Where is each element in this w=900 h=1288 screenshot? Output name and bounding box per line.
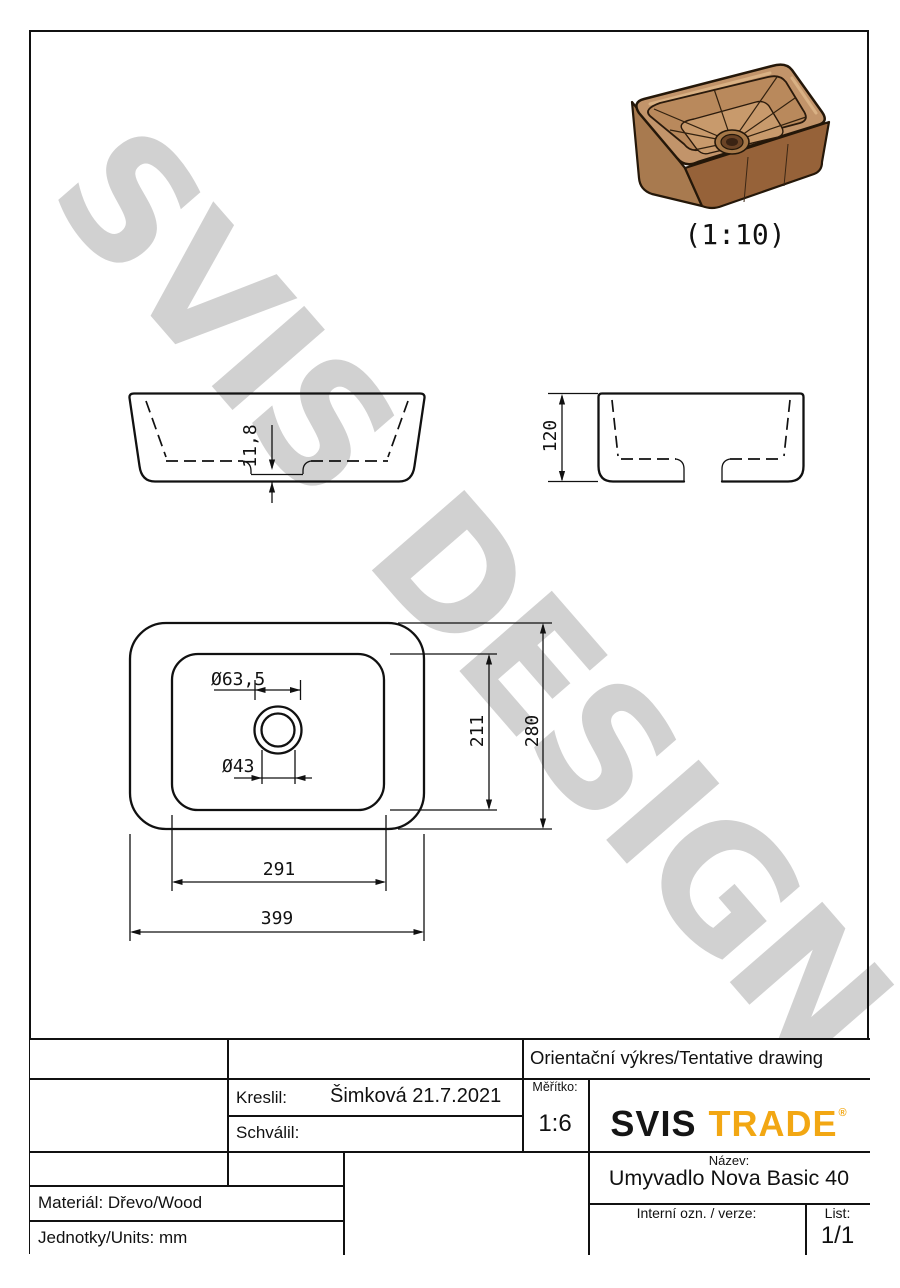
scale-field-label: Měřítko: (522, 1080, 588, 1094)
sink-3d-preview (598, 56, 838, 236)
drawing-page: SVIS DESIGN (1:10) (0, 0, 900, 1288)
side-view: 120 (540, 394, 804, 482)
drawn-by-value: Šimková 21.7.2021 (330, 1078, 501, 1115)
registered-mark: ® (838, 1107, 847, 1119)
dim-inner-depth: 211 (467, 715, 488, 748)
material-field: Materiál: Dřevo/Wood (38, 1185, 202, 1220)
front-view: 11,8 (129, 394, 424, 504)
drawn-by-label: Kreslil: (236, 1078, 287, 1115)
top-view: Ø63,5 Ø43 211 280 (130, 623, 552, 941)
sheet-number: 1/1 (805, 1216, 870, 1255)
units-field: Jednotky/Units: mm (38, 1220, 187, 1255)
dim-inner-width: 291 (263, 859, 296, 880)
company-logo: SVISTRADE® (588, 1078, 870, 1151)
logo-part-svis: SVIS (610, 1103, 696, 1144)
preview-scale-label: (1:10) (655, 218, 815, 251)
dim-height: 120 (540, 420, 561, 453)
dim-recess-depth: 11,8 (240, 424, 261, 467)
scale-field-value: 1:6 (522, 1096, 588, 1151)
dim-drain-outer: Ø63,5 (211, 669, 265, 690)
product-name: Umyvadlo Nova Basic 40 (588, 1166, 870, 1191)
dim-outer-width: 399 (261, 908, 294, 929)
logo-part-trade: TRADE (708, 1103, 837, 1144)
title-block: Orientační výkres/Tentative drawing Kres… (30, 1038, 870, 1255)
internal-id-label: Interní ozn. / verze: (588, 1205, 805, 1221)
dim-drain-inner: Ø43 (222, 756, 255, 777)
approved-by-label: Schválil: (236, 1115, 299, 1151)
dim-outer-depth: 280 (522, 715, 543, 748)
tentative-drawing-note: Orientační výkres/Tentative drawing (530, 1038, 866, 1078)
